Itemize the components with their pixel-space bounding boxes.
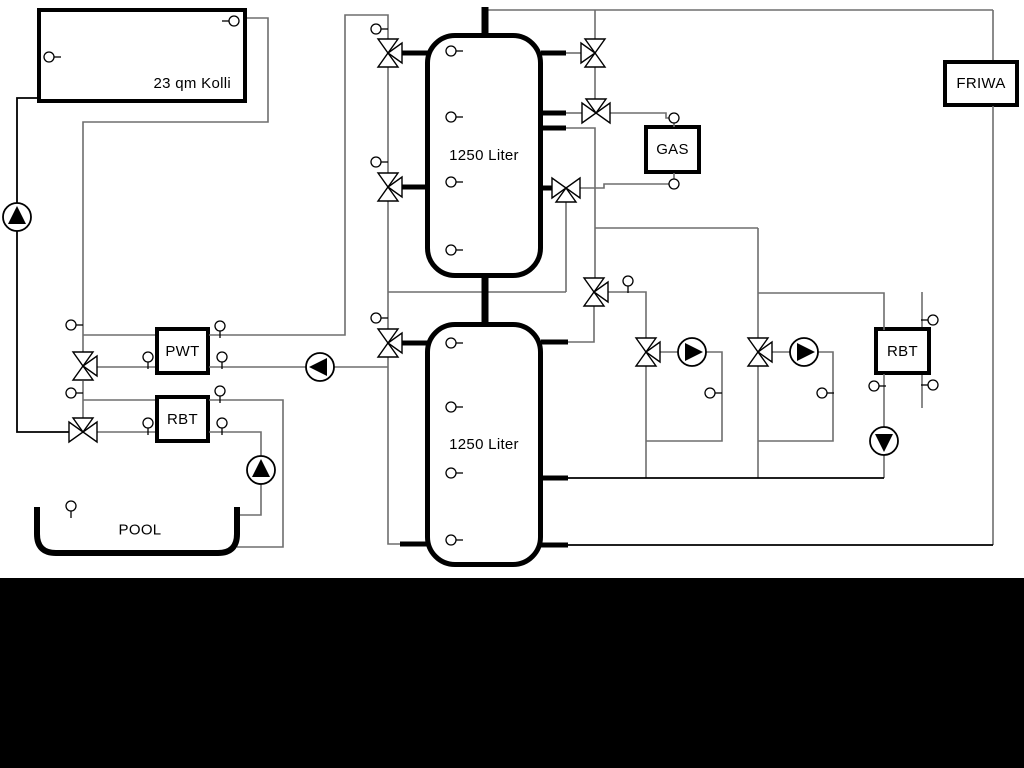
pipe bbox=[566, 128, 595, 279]
valve-triangle bbox=[748, 352, 768, 366]
sensor-bulb bbox=[705, 388, 715, 398]
pipe bbox=[388, 357, 402, 544]
valve-triangle bbox=[69, 422, 83, 442]
sensor-bulb bbox=[217, 418, 227, 428]
pipe bbox=[608, 292, 646, 338]
pipe bbox=[209, 400, 283, 547]
temp-sensor-icon bbox=[217, 418, 227, 435]
valve-triangle bbox=[581, 43, 595, 63]
valve-triangle bbox=[73, 352, 93, 366]
pipe bbox=[17, 230, 69, 432]
pump-body bbox=[3, 203, 31, 231]
solar-collector-box: 23 qm Kolli bbox=[37, 8, 247, 103]
pump-icon bbox=[678, 338, 706, 366]
valve-triangle bbox=[83, 422, 97, 442]
temp-sensor-icon bbox=[623, 276, 633, 293]
pump-body bbox=[790, 338, 818, 366]
valve-triangle bbox=[585, 53, 605, 67]
valve-triangle bbox=[73, 366, 93, 380]
three-way-valve-icon bbox=[581, 39, 605, 67]
pipe bbox=[758, 293, 884, 330]
pump-icon bbox=[3, 203, 31, 231]
valve-triangle bbox=[584, 278, 604, 292]
solar-collector-label: 23 qm Kolli bbox=[153, 75, 231, 92]
sensor-bulb bbox=[669, 179, 679, 189]
temp-sensor-icon bbox=[921, 380, 938, 390]
rbt-right-box: RBT bbox=[874, 327, 931, 375]
temp-sensor-icon bbox=[217, 352, 227, 369]
sensor-bulb bbox=[869, 381, 879, 391]
pipe bbox=[209, 432, 261, 456]
temp-sensor-icon bbox=[869, 381, 886, 391]
pipe bbox=[610, 113, 669, 118]
temp-sensor-icon bbox=[371, 24, 388, 34]
pwt-label: PWT bbox=[165, 343, 199, 360]
valve-triangle bbox=[646, 342, 660, 362]
sensor-bulb bbox=[143, 418, 153, 428]
temp-sensor-icon bbox=[705, 388, 722, 398]
pump-direction-arrow bbox=[8, 206, 26, 224]
sensor-bulb bbox=[371, 24, 381, 34]
valve-triangle bbox=[552, 178, 566, 198]
pipe bbox=[580, 184, 669, 188]
valve-triangle bbox=[636, 352, 656, 366]
three-way-valve-icon bbox=[69, 418, 97, 442]
buffer-tank-bottom: 1250 Liter bbox=[425, 322, 543, 567]
pump-body bbox=[870, 427, 898, 455]
temp-sensor-icon bbox=[66, 501, 76, 518]
gas-boiler-box: GAS bbox=[644, 125, 701, 174]
three-way-valve-icon bbox=[552, 178, 580, 202]
valve-triangle bbox=[388, 177, 402, 197]
valve-triangle bbox=[556, 188, 576, 202]
sensor-bulb bbox=[215, 321, 225, 331]
valve-triangle bbox=[378, 329, 398, 343]
gas-boiler-label: GAS bbox=[656, 141, 689, 158]
pump-icon bbox=[790, 338, 818, 366]
rbt-left-box: RBT bbox=[155, 395, 210, 443]
valve-triangle bbox=[378, 53, 398, 67]
three-way-valve-icon bbox=[584, 278, 608, 306]
temp-sensor-icon bbox=[215, 386, 225, 403]
pump-body bbox=[247, 456, 275, 484]
footer-black-band bbox=[0, 578, 1024, 768]
friwa-label: FRIWA bbox=[956, 75, 1005, 92]
temp-sensor-icon bbox=[66, 388, 83, 398]
temp-sensor-icon bbox=[66, 320, 83, 330]
temp-sensor-icon bbox=[921, 315, 938, 325]
pump-icon bbox=[306, 353, 334, 381]
valve-triangle bbox=[584, 292, 604, 306]
buffer-tank-bottom-label: 1250 Liter bbox=[449, 436, 519, 453]
temp-sensor-icon bbox=[669, 179, 679, 189]
pipe bbox=[17, 98, 37, 204]
valve-triangle bbox=[566, 178, 580, 198]
sensor-bulb bbox=[143, 352, 153, 362]
sensor-bulb bbox=[66, 501, 76, 511]
sensor-bulb bbox=[928, 315, 938, 325]
pool-label: POOL bbox=[119, 522, 162, 539]
temp-sensor-icon bbox=[371, 313, 388, 323]
pump-body bbox=[678, 338, 706, 366]
hydraulic-schematic: 23 qm Kolli 1250 Liter 1250 Liter GAS FR… bbox=[0, 0, 1024, 768]
temp-sensor-icon bbox=[143, 418, 153, 435]
buffer-tank-top: 1250 Liter bbox=[425, 33, 543, 278]
temp-sensor-icon bbox=[215, 321, 225, 338]
valve-triangle bbox=[582, 103, 596, 123]
buffer-tank-top-label: 1250 Liter bbox=[449, 147, 519, 164]
sensor-bulb bbox=[371, 313, 381, 323]
sensor-bulb bbox=[669, 113, 679, 123]
temp-sensor-icon bbox=[143, 352, 153, 369]
valve-triangle bbox=[378, 173, 398, 187]
valve-triangle bbox=[378, 39, 398, 53]
pipe bbox=[646, 352, 722, 441]
pump-body bbox=[306, 353, 334, 381]
friwa-box: FRIWA bbox=[943, 60, 1019, 107]
three-way-valve-icon bbox=[378, 173, 402, 201]
sensor-bulb bbox=[928, 380, 938, 390]
valve-triangle bbox=[586, 99, 606, 113]
rbt-left-label: RBT bbox=[167, 411, 198, 428]
valve-triangle bbox=[378, 187, 398, 201]
pipe bbox=[568, 306, 594, 342]
pump-direction-arrow bbox=[685, 343, 703, 361]
sensor-bulb bbox=[215, 386, 225, 396]
sensor-bulb bbox=[371, 157, 381, 167]
sensor-bulb bbox=[66, 388, 76, 398]
pump-direction-arrow bbox=[875, 434, 893, 452]
temp-sensor-icon bbox=[371, 157, 388, 167]
three-way-valve-icon bbox=[748, 338, 772, 366]
valve-triangle bbox=[585, 39, 605, 53]
pump-direction-arrow bbox=[309, 358, 327, 376]
pump-direction-arrow bbox=[252, 459, 270, 477]
pump-direction-arrow bbox=[797, 343, 815, 361]
sensor-bulb bbox=[66, 320, 76, 330]
pump-icon bbox=[247, 456, 275, 484]
sensor-bulb bbox=[217, 352, 227, 362]
valve-triangle bbox=[378, 343, 398, 357]
three-way-valve-icon bbox=[73, 352, 97, 380]
pump-icon bbox=[870, 427, 898, 455]
three-way-valve-icon bbox=[378, 39, 402, 67]
valve-triangle bbox=[636, 338, 656, 352]
valve-triangle bbox=[758, 342, 772, 362]
valve-triangle bbox=[388, 43, 402, 63]
three-way-valve-icon bbox=[378, 329, 402, 357]
temp-sensor-icon bbox=[817, 388, 834, 398]
pipe bbox=[758, 352, 833, 441]
three-way-valve-icon bbox=[636, 338, 660, 366]
valve-triangle bbox=[83, 356, 97, 376]
valve-triangle bbox=[596, 103, 610, 123]
sensor-bulb bbox=[817, 388, 827, 398]
three-way-valve-icon bbox=[582, 99, 610, 123]
temp-sensor-icon bbox=[669, 113, 679, 123]
pwt-heat-exchanger-box: PWT bbox=[155, 327, 210, 375]
valve-triangle bbox=[73, 418, 93, 432]
pipe bbox=[237, 484, 261, 515]
valve-triangle bbox=[388, 333, 402, 353]
valve-triangle bbox=[594, 282, 608, 302]
valve-triangle bbox=[748, 338, 768, 352]
sensor-bulb bbox=[623, 276, 633, 286]
rbt-right-label: RBT bbox=[887, 343, 918, 360]
